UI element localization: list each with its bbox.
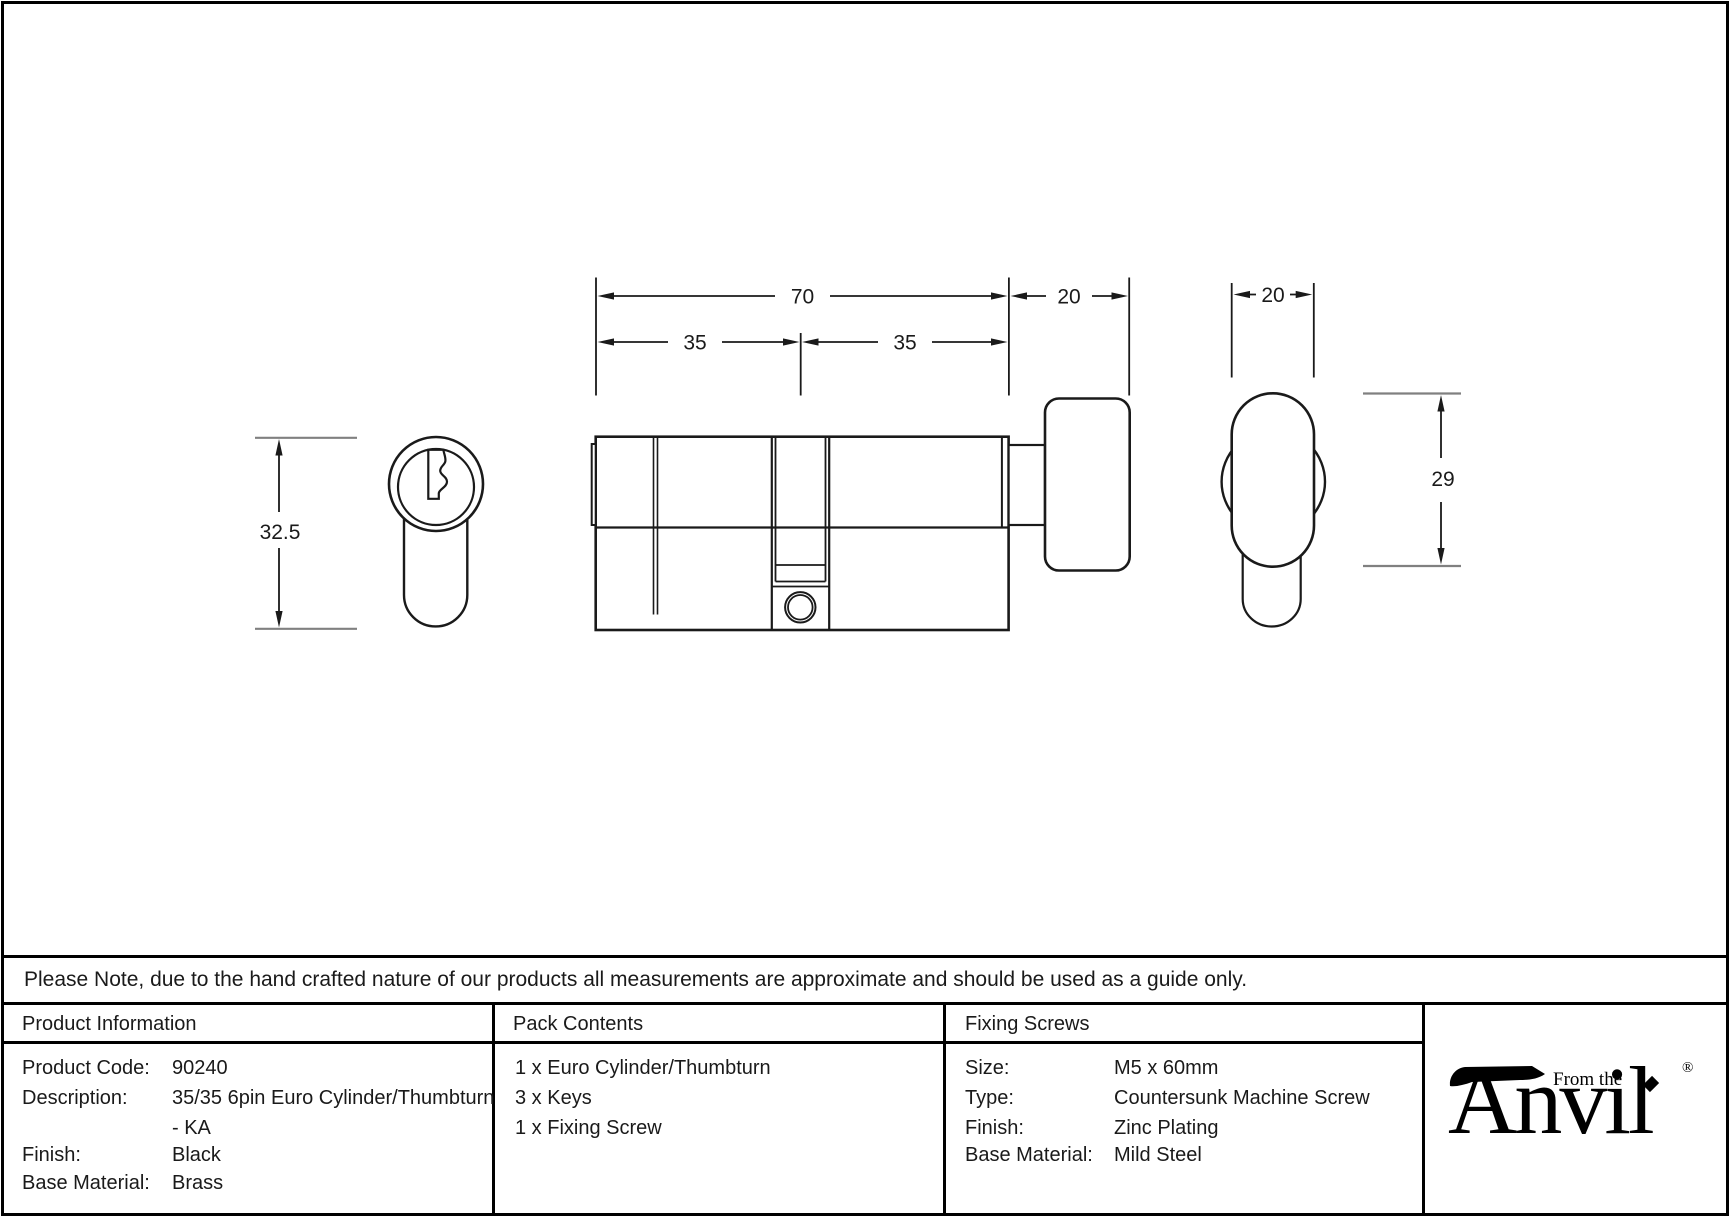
dim-label-knob-height: 29: [1431, 468, 1454, 491]
dim-knob-width: 20: [1232, 283, 1314, 378]
row-label: Base Material:: [965, 1141, 1093, 1169]
side-knob-pill: [1232, 393, 1314, 566]
list-item: 3 x Keys: [515, 1084, 592, 1112]
anvil-icon: [1448, 1062, 1548, 1092]
cam-fixing-hole-outer: [785, 592, 815, 622]
row-label: Product Code:: [22, 1054, 150, 1082]
row-value: 35/35 6pin Euro Cylinder/Thumbturn: [172, 1084, 494, 1112]
list-item: 1 x Fixing Screw: [515, 1114, 662, 1142]
thumbturn-neck: [1009, 445, 1045, 525]
note-text: Please Note, due to the hand crafted nat…: [24, 968, 1247, 992]
row-value: M5 x 60mm: [1114, 1054, 1218, 1082]
product-spec-sheet: 32.5 70: [0, 0, 1730, 1217]
table-divider-2: [943, 1005, 946, 1214]
dim-label-knob-width: 20: [1261, 284, 1284, 307]
dim-label-overall: 70: [791, 286, 814, 309]
keyhole-end-view: [389, 437, 483, 626]
table-row: - KA: [22, 1114, 490, 1142]
row-label: Base Material:: [22, 1169, 150, 1197]
table-row: Product Code: 90240: [22, 1054, 490, 1082]
measurement-note: Please Note, due to the hand crafted nat…: [1, 955, 1729, 1005]
left-plug-cap: [592, 444, 596, 525]
product-information-header: Product Information: [22, 1008, 197, 1040]
list-item: 1 x Euro Cylinder/Thumbturn: [515, 1054, 771, 1082]
row-value: - KA: [172, 1114, 211, 1142]
row-label: Type:: [965, 1084, 1014, 1112]
row-value: 90240: [172, 1054, 228, 1082]
dim-label-right-half: 35: [893, 332, 916, 355]
row-value: Mild Steel: [1114, 1141, 1202, 1169]
dim-body-height: 32.5: [255, 438, 357, 629]
table-row: Description: 35/35 6pin Euro Cylinder/Th…: [22, 1084, 490, 1112]
table-row: Base Material: Brass: [22, 1169, 490, 1197]
thumbturn-side-view: [1222, 393, 1325, 626]
fixing-screws-header: Fixing Screws: [965, 1008, 1089, 1040]
table-row: Base Material: Mild Steel: [965, 1141, 1415, 1169]
row-value: Zinc Plating: [1114, 1114, 1219, 1142]
dim-label-left-half: 35: [683, 332, 706, 355]
row-value: Brass: [172, 1169, 223, 1197]
thumbturn-knob: [1045, 399, 1130, 571]
pack-contents-header: Pack Contents: [513, 1008, 643, 1040]
dim-right-half: 35: [802, 332, 1008, 355]
row-label: Size:: [965, 1054, 1009, 1082]
dim-overall-length: 70: [598, 286, 1008, 309]
technical-drawing: 32.5 70: [0, 0, 1730, 955]
table-row: Finish: Zinc Plating: [965, 1114, 1415, 1142]
dim-label-body-height: 32.5: [260, 521, 301, 544]
row-value: Countersunk Machine Screw: [1114, 1084, 1370, 1112]
dim-label-thumbturn: 20: [1057, 286, 1080, 309]
row-label: Description:: [22, 1084, 128, 1112]
table-divider-3: [1422, 1005, 1425, 1214]
table-header-separator: [1, 1041, 1425, 1044]
registered-mark: ®: [1682, 1060, 1693, 1077]
front-view: [592, 399, 1130, 631]
row-label: Finish:: [965, 1114, 1024, 1142]
dim-left-half: 35: [598, 332, 800, 355]
dim-knob-height: 29: [1363, 394, 1461, 567]
table-row: Finish: Black: [22, 1141, 490, 1169]
row-value: Black: [172, 1141, 221, 1169]
row-label: Finish:: [22, 1141, 81, 1169]
brand-tagline: From the: [1553, 1069, 1622, 1091]
table-row: Size: M5 x 60mm: [965, 1054, 1415, 1082]
dim-thumbturn-length: 20: [1011, 286, 1129, 309]
table-row: Type: Countersunk Machine Screw: [965, 1084, 1415, 1112]
